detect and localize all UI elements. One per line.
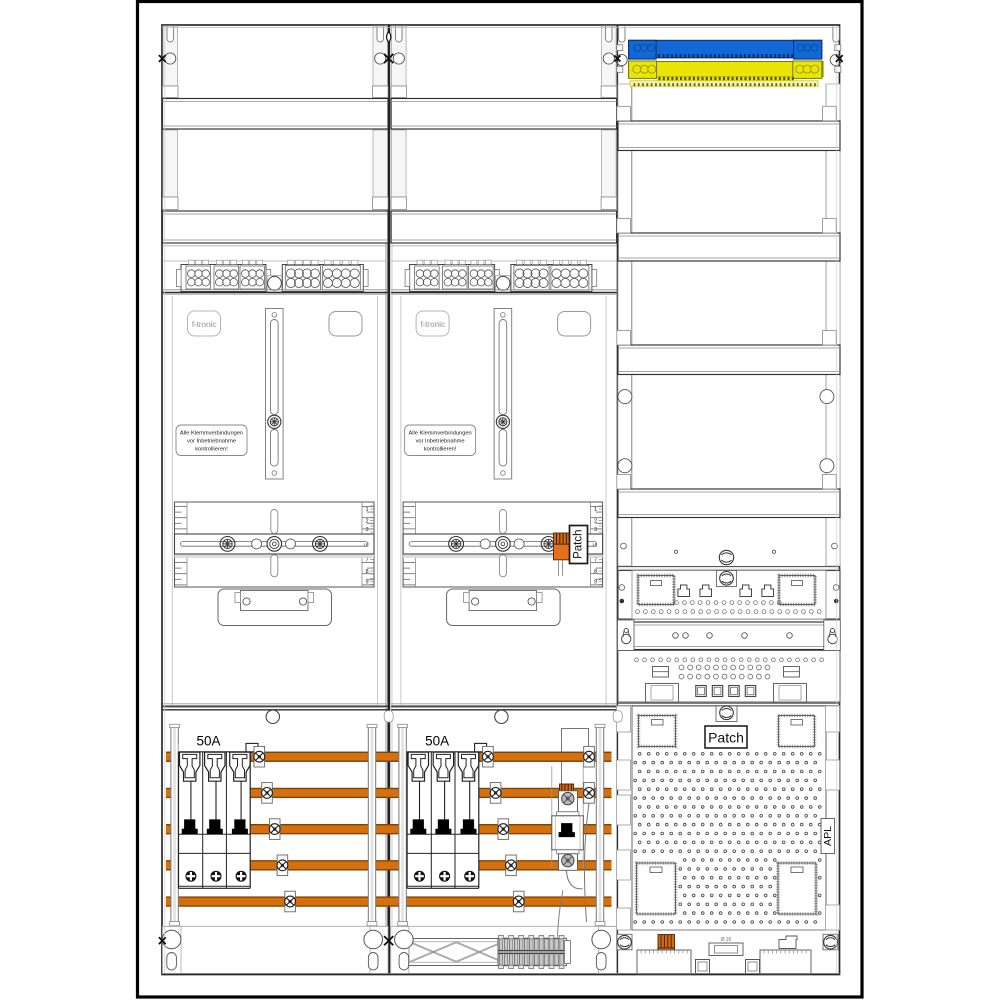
svg-text:50A: 50A [196,734,220,749]
svg-text:Alle Klemmverbindungen: Alle Klemmverbindungen [408,430,471,436]
svg-text:Patch: Patch [708,730,744,746]
svg-text:50A: 50A [425,734,449,749]
svg-text:f-tronic: f-tronic [420,320,446,329]
svg-text:9: 9 [365,580,368,586]
svg-text:Patch: Patch [573,529,585,558]
svg-text:9: 9 [594,580,597,586]
svg-text:vor Inbetriebnahme: vor Inbetriebnahme [416,438,465,444]
svg-text:2: 2 [594,519,597,525]
svg-text:kontrollieren!: kontrollieren! [195,446,228,452]
svg-text:15: 15 [592,543,598,548]
svg-text:15: 15 [363,543,369,548]
svg-text:APL: APL [822,826,834,846]
svg-text:f-tronic: f-tronic [192,320,218,329]
svg-text:Ø 26: Ø 26 [721,937,732,943]
svg-text:3: 3 [594,527,597,533]
svg-text:8: 8 [594,569,597,575]
svg-text:2: 2 [365,519,368,525]
svg-text:8: 8 [365,569,368,575]
svg-text:7: 7 [594,558,597,564]
svg-text:7: 7 [365,558,368,564]
svg-text:3: 3 [365,527,368,533]
svg-text:kontrollieren!: kontrollieren! [424,446,457,452]
svg-text:1: 1 [365,507,368,513]
svg-text:Alle Klemmverbindungen: Alle Klemmverbindungen [180,430,243,436]
svg-text:vor Inbetriebnahme: vor Inbetriebnahme [187,438,236,444]
svg-text:1: 1 [594,507,597,513]
